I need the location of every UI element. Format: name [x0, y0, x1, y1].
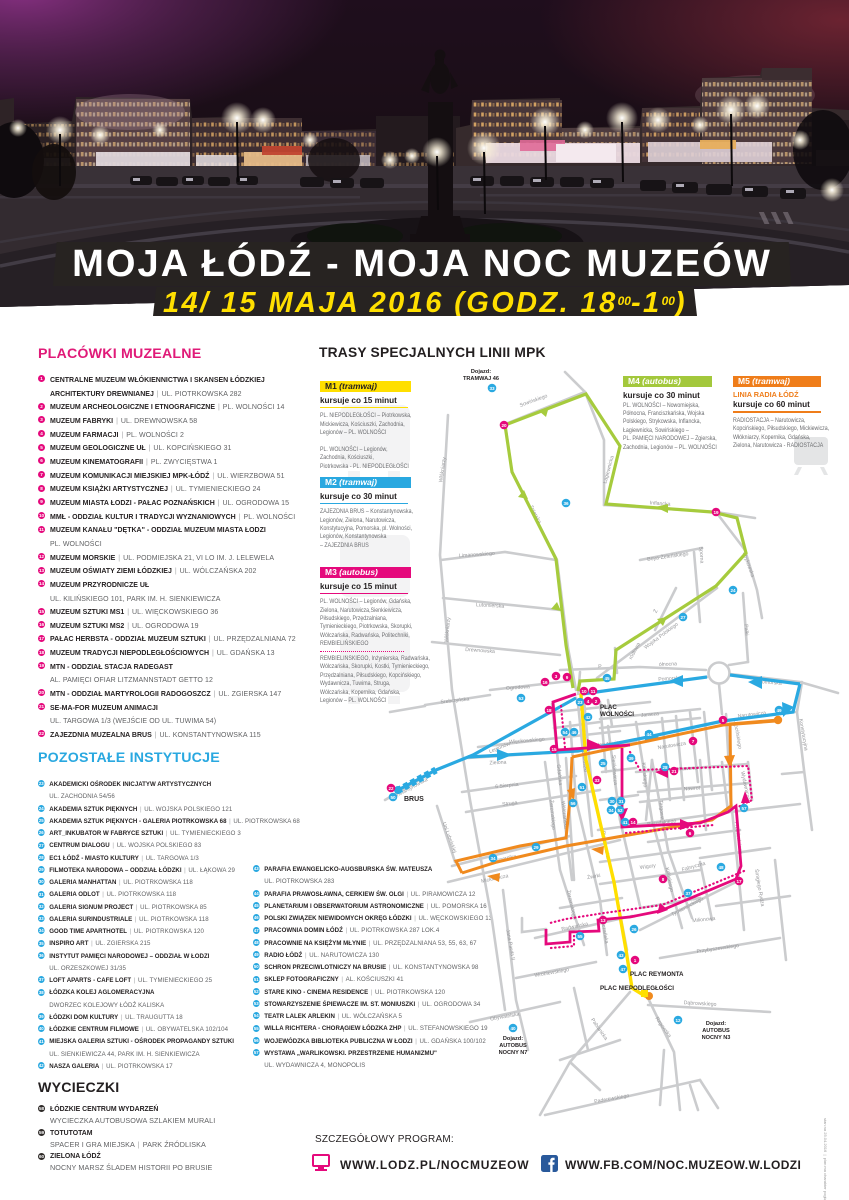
svg-text:Żwirki: Żwirki — [586, 872, 601, 881]
svg-text:2: 2 — [595, 699, 598, 704]
svg-text:Sporna: Sporna — [697, 546, 704, 563]
svg-text:9: 9 — [566, 675, 569, 680]
svg-text:Nawrot: Nawrot — [684, 785, 701, 792]
svg-text:28: 28 — [662, 765, 668, 770]
svg-text:PLAC: PLAC — [600, 704, 617, 711]
svg-text:31: 31 — [618, 799, 624, 804]
svg-text:6 Sierpnia: 6 Sierpnia — [495, 782, 519, 790]
svg-text:13: 13 — [600, 918, 606, 923]
svg-text:37: 37 — [685, 891, 691, 896]
svg-text:56: 56 — [570, 801, 576, 806]
svg-text:Narutowicza: Narutowicza — [657, 741, 686, 751]
svg-text:16: 16 — [542, 680, 548, 685]
svg-text:42: 42 — [585, 715, 591, 720]
svg-text:Przybyszewskiego: Przybyszewskiego — [696, 943, 739, 955]
svg-text:BRUS: BRUS — [404, 796, 424, 803]
svg-text:47: 47 — [620, 967, 626, 972]
svg-text:Milionowa: Milionowa — [692, 916, 716, 924]
svg-text:36: 36 — [563, 501, 569, 506]
svg-text:Boya-Żeleńskiego: Boya-Żeleńskiego — [647, 550, 689, 563]
svg-text:50: 50 — [390, 795, 396, 800]
svg-text:18: 18 — [546, 708, 552, 713]
svg-text:8: 8 — [662, 877, 665, 882]
svg-text:Drewnowska: Drewnowska — [465, 647, 495, 655]
svg-text:Dojazd:: Dojazd: — [471, 369, 491, 375]
svg-text:PLAC REYMONTA: PLAC REYMONTA — [630, 971, 684, 978]
svg-text:5: 5 — [722, 718, 725, 723]
svg-text:53: 53 — [518, 696, 524, 701]
svg-text:Targowa: Targowa — [657, 800, 664, 820]
svg-text:Jana Pawła II: Jana Pawła II — [504, 929, 515, 961]
svg-text:43: 43 — [618, 953, 624, 958]
svg-text:NOCNY N7: NOCNY N7 — [499, 1050, 528, 1056]
svg-text:40: 40 — [510, 1026, 516, 1031]
svg-text:46: 46 — [571, 730, 577, 735]
svg-text:14: 14 — [630, 820, 636, 825]
svg-text:Gdańska: Gdańska — [555, 764, 563, 785]
svg-text:20: 20 — [501, 423, 507, 428]
svg-text:12: 12 — [675, 1018, 681, 1023]
svg-text:51: 51 — [579, 785, 585, 790]
svg-text:44: 44 — [646, 732, 652, 737]
svg-text:TRAMWAJ 46: TRAMWAJ 46 — [463, 376, 499, 382]
svg-text:Wojska Polskiego: Wojska Polskiego — [643, 621, 679, 650]
svg-text:Limanowskiego: Limanowskiego — [459, 551, 495, 559]
svg-text:Jaracza: Jaracza — [641, 711, 660, 719]
svg-text:Żeromskiego: Żeromskiego — [548, 800, 558, 831]
svg-text:Paderewskiego: Paderewskiego — [594, 1093, 630, 1105]
svg-text:Struga: Struga — [502, 800, 518, 808]
svg-text:Wróblewskiego: Wróblewskiego — [534, 967, 570, 979]
svg-text:41: 41 — [622, 820, 628, 825]
svg-text:49: 49 — [776, 708, 782, 713]
svg-text:AUTOBUS: AUTOBUS — [702, 1028, 730, 1034]
svg-text:3: 3 — [555, 674, 558, 679]
svg-text:6: 6 — [689, 831, 692, 836]
svg-text:23: 23 — [577, 700, 583, 705]
svg-text:52: 52 — [617, 808, 623, 813]
svg-text:4: 4 — [587, 699, 590, 704]
svg-text:Rzgowska: Rzgowska — [653, 1016, 672, 1039]
svg-text:21: 21 — [671, 769, 677, 774]
svg-text:Ogrodowa: Ogrodowa — [506, 684, 530, 692]
svg-text:15: 15 — [551, 747, 557, 752]
svg-text:17: 17 — [736, 879, 742, 884]
svg-text:Dojazd:: Dojazd: — [706, 1021, 726, 1027]
svg-text:NOCNY N3: NOCNY N3 — [702, 1035, 731, 1041]
svg-text:25: 25 — [600, 761, 606, 766]
svg-text:27: 27 — [680, 615, 686, 620]
svg-text:7: 7 — [692, 739, 695, 744]
svg-text:33: 33 — [489, 386, 495, 391]
svg-text:34: 34 — [490, 856, 496, 861]
svg-text:Pałki: Pałki — [743, 624, 750, 636]
svg-text:29: 29 — [533, 845, 539, 850]
svg-text:19: 19 — [713, 510, 719, 515]
svg-text:45: 45 — [604, 676, 610, 681]
svg-text:48: 48 — [718, 865, 724, 870]
svg-text:11: 11 — [591, 689, 596, 694]
svg-text:10: 10 — [581, 689, 587, 694]
svg-text:AUTOBUS: AUTOBUS — [499, 1043, 527, 1049]
svg-text:Lutomierska: Lutomierska — [476, 602, 505, 609]
svg-text:Sienkiewicza: Sienkiewicza — [610, 755, 618, 785]
svg-text:1: 1 — [634, 958, 637, 963]
svg-text:Dojazd:: Dojazd: — [503, 1036, 523, 1042]
svg-text:24: 24 — [730, 588, 736, 593]
svg-text:Obywatelska: Obywatelska — [490, 1011, 520, 1022]
svg-text:Uni Lubelskiej: Uni Lubelskiej — [441, 821, 458, 853]
svg-text:55: 55 — [577, 934, 583, 939]
svg-text:39: 39 — [628, 756, 634, 761]
svg-text:Sowińskiego: Sowińskiego — [519, 393, 549, 409]
svg-text:PLAC NIEPODLEGŁOŚCI: PLAC NIEPODLEGŁOŚCI — [600, 985, 674, 992]
svg-text:WOLNOŚCI: WOLNOŚCI — [600, 711, 634, 718]
svg-text:Więckowskiego: Więckowskiego — [509, 736, 545, 745]
svg-text:Kilińskiego: Kilińskiego — [640, 762, 648, 787]
svg-text:54: 54 — [562, 730, 568, 735]
svg-text:57: 57 — [741, 806, 747, 811]
svg-text:30: 30 — [609, 799, 615, 804]
svg-text:34: 34 — [608, 808, 614, 813]
svg-text:26: 26 — [631, 927, 637, 932]
svg-text:33: 33 — [594, 778, 600, 783]
svg-text:Wigury: Wigury — [639, 863, 656, 871]
svg-text:22: 22 — [388, 786, 394, 791]
svg-text:Włókniarzy: Włókniarzy — [444, 617, 453, 643]
